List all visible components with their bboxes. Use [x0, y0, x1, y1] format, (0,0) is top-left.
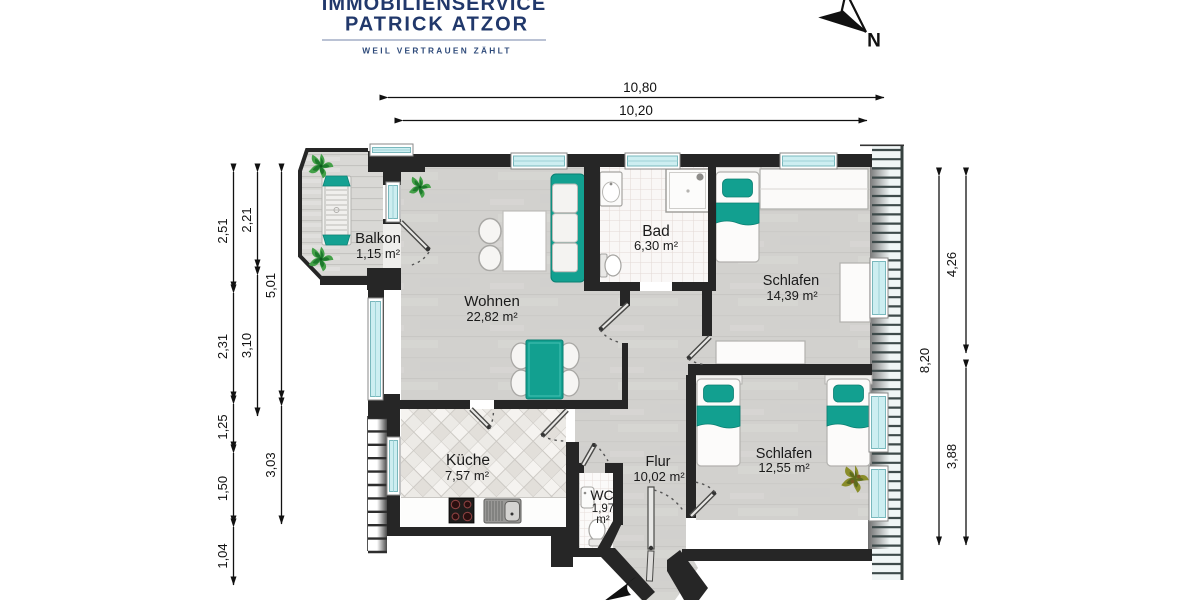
- svg-text:Wohnen: Wohnen: [464, 293, 520, 310]
- svg-text:Schlafen: Schlafen: [763, 273, 819, 289]
- svg-text:14,39 m²: 14,39 m²: [766, 288, 818, 303]
- svg-text:Küche: Küche: [446, 452, 490, 469]
- svg-text:Flur: Flur: [646, 454, 671, 470]
- svg-text:7,57 m²: 7,57 m²: [445, 468, 490, 483]
- svg-text:2,51: 2,51: [215, 218, 230, 243]
- svg-text:12,55 m²: 12,55 m²: [758, 460, 810, 475]
- svg-text:10,02 m²: 10,02 m²: [633, 469, 685, 484]
- svg-text:3,03: 3,03: [263, 452, 278, 477]
- svg-text:1,04: 1,04: [215, 543, 230, 568]
- svg-text:3,10: 3,10: [239, 333, 254, 358]
- svg-text:1,25: 1,25: [215, 414, 230, 439]
- svg-text:10,80: 10,80: [623, 80, 657, 95]
- svg-text:1,50: 1,50: [215, 476, 230, 501]
- svg-text:1,15 m²: 1,15 m²: [356, 246, 401, 261]
- svg-text:PATRICK ATZOR: PATRICK ATZOR: [345, 14, 529, 36]
- svg-text:10,20: 10,20: [619, 103, 653, 118]
- svg-text:Balkon: Balkon: [355, 230, 401, 247]
- svg-text:WEIL VERTRAUEN ZÄHLT: WEIL VERTRAUEN ZÄHLT: [362, 46, 511, 56]
- svg-text:WC: WC: [590, 487, 613, 503]
- svg-text:3,88: 3,88: [944, 444, 959, 469]
- svg-text:N: N: [867, 31, 881, 52]
- svg-text:8,20: 8,20: [917, 348, 932, 373]
- svg-text:2,31: 2,31: [215, 334, 230, 359]
- svg-text:m²: m²: [596, 514, 610, 526]
- svg-text:2,21: 2,21: [239, 207, 254, 232]
- svg-text:4,26: 4,26: [944, 252, 959, 277]
- svg-text:6,30 m²: 6,30 m²: [634, 238, 679, 253]
- svg-text:22,82 m²: 22,82 m²: [466, 309, 518, 324]
- svg-text:5,01: 5,01: [263, 273, 278, 298]
